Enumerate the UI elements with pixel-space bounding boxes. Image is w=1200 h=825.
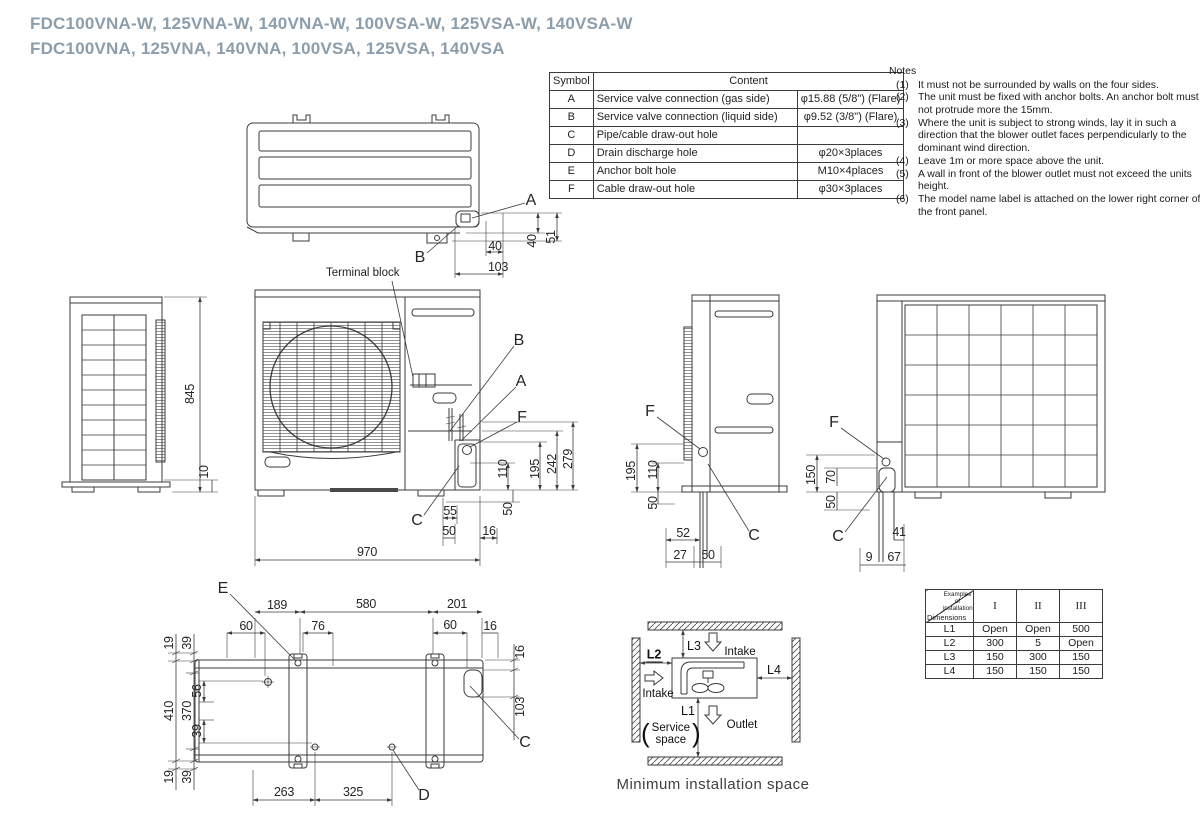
dimension-label-cell: L4 [926,665,974,679]
dim-label: 103 [488,260,508,274]
dim-label: 10 [197,465,211,478]
dim-label: 580 [356,597,376,611]
install-row: L4150150150 [926,665,1103,679]
note-text: Leave 1m or more space above the unit. [918,156,1200,169]
dim-label: 50 [646,496,660,509]
value-cell [797,127,904,145]
dim-label: 201 [447,597,467,611]
dim-label: 39 [180,770,194,783]
install-row: L23005Open [926,637,1103,651]
note-text: A wall in front of the blower outlet mus… [918,169,1200,194]
install-table-header: Examples of installation Dimensions I II… [926,590,1103,623]
note-number: (1) [889,80,918,93]
symbol-row: DDrain discharge holeφ20×3places [550,145,904,163]
dim-label: 970 [357,545,377,559]
install-row: L1OpenOpen500 [926,623,1103,637]
note-number: (6) [889,194,918,219]
dim-label: 16 [482,524,495,538]
value-cell: φ20×3places [797,145,904,163]
corner-label-top: Examples of installation [943,592,972,613]
symbol-column-header: Symbol [550,73,594,91]
callout-label: F [829,414,839,432]
note-number: (4) [889,156,918,169]
value-cell: 150 [1060,651,1103,665]
install-table-corner: Examples of installation Dimensions [926,590,974,623]
notes-title: Notes [889,66,1200,79]
dim-label: 9 [866,550,873,564]
dim-label: 39 [190,724,204,737]
service-space-line1: Service [652,722,690,734]
example-column-2: II [1017,590,1060,623]
note-number: (5) [889,169,918,194]
dim-label: 39 [180,636,194,649]
open-paren: ( [641,722,650,745]
dim-label: 150 [804,465,818,485]
note-item: (5)A wall in front of the blower outlet … [889,169,1200,194]
dim-label: 195 [528,459,542,479]
note-text: The model name label is attached on the … [918,194,1200,219]
model-list-line2: FDC100VNA, 125VNA, 140VNA, 100VSA, 125VS… [30,37,633,62]
dim-label: 103 [513,697,527,717]
callout-label: A [516,373,527,391]
close-paren: ) [692,722,701,745]
callout-label: B [514,332,525,350]
value-cell: Open [974,623,1017,637]
dim-label: 60 [443,618,456,632]
value-cell: φ9.52 (3/8") (Flare) [797,109,904,127]
installation-table: Examples of installation Dimensions I II… [925,589,1103,679]
example-column-3: III [1060,590,1103,623]
note-item: (6)The model name label is attached on t… [889,194,1200,219]
symbol-cell: F [550,181,594,199]
value-cell: 5 [1017,637,1060,651]
dim-label: 263 [274,785,294,799]
value-cell: 150 [1017,665,1060,679]
page-title: FDC100VNA-W, 125VNA-W, 140VNA-W, 100VSA-… [30,12,633,61]
outlet-label: Outlet [727,719,758,731]
callout-label: D [418,787,430,805]
dimension-label-cell: L2 [926,637,974,651]
back-view [806,295,1105,572]
symbol-row: BService valve connection (liquid side)φ… [550,109,904,127]
symbol-row: AService valve connection (gas side)φ15.… [550,91,904,109]
callout-label: B [415,249,426,267]
dim-label: 410 [162,701,176,721]
dim-label: 242 [545,454,559,474]
dim-label: 845 [183,384,197,404]
l1-label: L1 [681,704,695,718]
note-number: (3) [889,118,918,156]
dim-label: 50 [824,495,838,508]
dimension-label-cell: L3 [926,651,974,665]
value-cell: 150 [974,651,1017,665]
symbol-row: FCable draw-out holeφ30×3places [550,181,904,199]
symbol-table: Symbol Content AService valve connection… [549,72,904,199]
example-column-1: I [974,590,1017,623]
dimension-label-cell: L1 [926,623,974,637]
note-number: (2) [889,92,918,117]
value-cell: 500 [1060,623,1103,637]
dim-label: 52 [676,526,689,540]
content-cell: Pipe/cable draw-out hole [593,127,797,145]
note-text: Where the unit is subject to strong wind… [918,118,1200,156]
symbol-cell: D [550,145,594,163]
note-item: (1)It must not be surrounded by walls on… [889,80,1200,93]
dim-label: 40 [525,234,539,247]
dim-label: 50 [501,502,515,515]
symbol-cell: E [550,163,594,181]
note-text: It must not be surrounded by walls on th… [918,80,1200,93]
dim-label: 19 [162,770,176,783]
l3-label: L3 [687,639,701,653]
service-space-line2: space [656,734,687,746]
symbol-table-body: Symbol Content AService valve connection… [550,73,904,199]
dim-label: 41 [892,525,905,539]
callout-label: A [526,192,537,210]
value-cell: Open [1017,623,1060,637]
callout-label: C [519,734,531,752]
dim-label: 370 [180,701,194,721]
symbol-cell: B [550,109,594,127]
content-cell: Service valve connection (liquid side) [593,109,797,127]
symbol-cell: C [550,127,594,145]
dim-label: 16 [513,645,527,658]
dim-label: 110 [496,459,510,478]
content-cell: Cable draw-out hole [593,181,797,199]
l2-label: L2 [646,648,663,663]
l4-label: L4 [767,663,781,677]
notes-block: Notes (1)It must not be surrounded by wa… [889,66,1200,219]
dim-label: 110 [646,460,660,479]
dim-label: 67 [887,550,900,564]
dim-label: 16 [483,619,496,633]
technical-drawing-page: FDC100VNA-W, 125VNA-W, 140VNA-W, 100VSA-… [0,0,1200,825]
value-cell: M10×4places [797,163,904,181]
intake-top-label: Intake [724,646,755,658]
install-row: L3150300150 [926,651,1103,665]
value-cell: 300 [1017,651,1060,665]
dim-label: 50 [701,548,714,562]
dim-label: 40 [488,239,501,253]
installation-space-caption: Minimum installation space [606,776,820,793]
dim-label: 51 [544,230,558,243]
install-table-body: Examples of installation Dimensions I II… [926,590,1103,679]
symbol-row: EAnchor bolt holeM10×4places [550,163,904,181]
callout-label: F [517,409,527,427]
corner-label-bottom: Dimensions [927,614,966,622]
dim-label: 195 [624,461,638,481]
dim-label: 60 [239,619,252,633]
content-cell: Anchor bolt hole [593,163,797,181]
content-cell: Drain discharge hole [593,145,797,163]
value-cell: 150 [1060,665,1103,679]
bottom-view [168,594,520,806]
dim-label: 56 [190,684,204,697]
top-view [247,115,562,278]
dim-label: 325 [343,785,363,799]
symbol-table-header: Symbol Content [550,73,904,91]
callout-label: C [411,512,423,530]
note-item: (2)The unit must be fixed with anchor bo… [889,92,1200,117]
symbol-row: CPipe/cable draw-out hole [550,127,904,145]
dim-label: 70 [824,470,838,483]
callout-label: C [748,527,760,545]
callout-label: E [218,580,229,598]
model-list-line1: FDC100VNA-W, 125VNA-W, 140VNA-W, 100VSA-… [30,12,633,37]
dim-label: 189 [267,598,287,612]
dim-label: 19 [162,636,176,649]
notes-list: (1)It must not be surrounded by walls on… [889,80,1200,220]
service-space-note: ( Service space ) [641,722,701,746]
side-view-right [631,295,787,568]
value-cell: Open [1060,637,1103,651]
symbol-cell: A [550,91,594,109]
terminal-block-label: Terminal block [326,267,400,279]
content-cell: Service valve connection (gas side) [593,91,797,109]
callout-label: F [645,403,655,421]
value-cell: φ15.88 (5/8") (Flare) [797,91,904,109]
dim-label: 279 [561,449,575,469]
dim-label: 55 [443,504,456,518]
value-cell: 300 [974,637,1017,651]
dim-label: 50 [442,524,455,538]
value-cell: 150 [974,665,1017,679]
content-column-header: Content [593,73,904,91]
note-item: (4)Leave 1m or more space above the unit… [889,156,1200,169]
value-cell: φ30×3places [797,181,904,199]
intake-left-label: Intake [642,688,673,700]
note-text: The unit must be fixed with anchor bolts… [918,92,1200,117]
dim-label: 76 [311,619,324,633]
note-item: (3)Where the unit is subject to strong w… [889,118,1200,156]
callout-label: C [832,528,844,546]
dim-label: 27 [673,548,686,562]
